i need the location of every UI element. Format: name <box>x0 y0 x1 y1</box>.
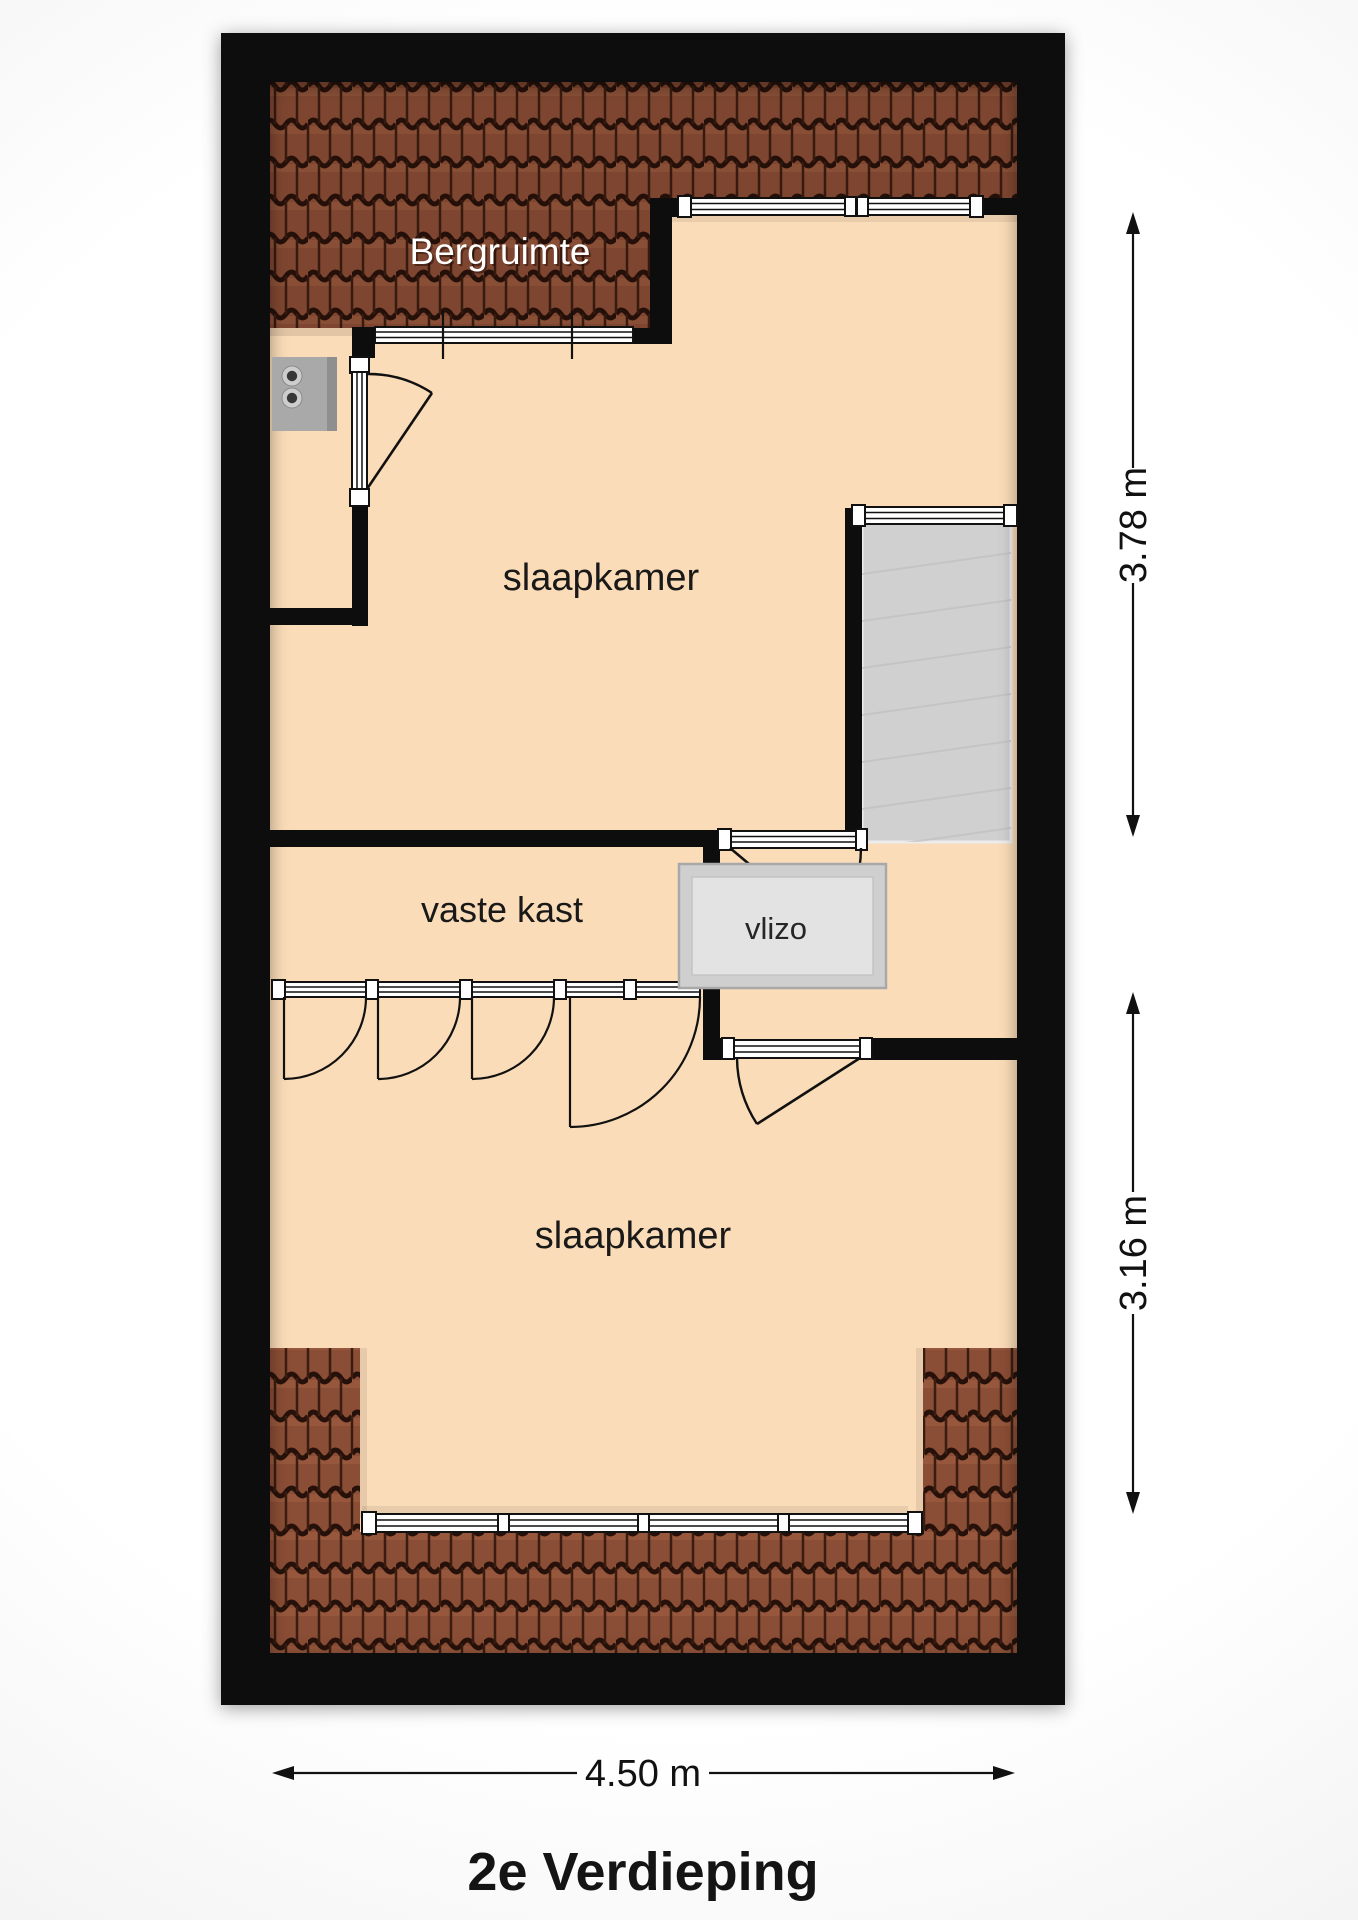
wall-step-vertical <box>650 198 672 344</box>
stairs <box>855 523 1018 850</box>
window-top <box>678 196 983 217</box>
wall-landing-bottom-stub <box>703 1038 722 1060</box>
wall-topwindow-right <box>982 198 1017 215</box>
vaste-kast-label: vaste kast <box>421 889 583 930</box>
window-stairs <box>852 505 1017 526</box>
wall-landing-bottom <box>872 1038 1017 1060</box>
vlizo-hatch: vlizo <box>679 864 886 988</box>
dimension-label-bottom: 3.16 m <box>1113 1195 1155 1311</box>
boiler-icon <box>272 357 337 431</box>
bedroom-top-label: slaapkamer <box>503 557 700 599</box>
roof-shadow <box>916 1348 923 1518</box>
roof-shadow <box>362 1506 908 1514</box>
dimension-label-top: 3.78 m <box>1113 467 1155 583</box>
dimension-vertical-top: 3.78 m <box>1113 212 1155 837</box>
wall-stairs-left <box>845 508 862 832</box>
bergruimte-label: Bergruimte <box>410 231 591 272</box>
wall-middle <box>270 830 718 847</box>
wall-bergwindow-right <box>633 328 672 344</box>
floorplan-page: vlizo Bergruimte Bergruimte slaapkamer v… <box>0 0 1358 1920</box>
dimension-label-width: 4.50 m <box>585 1753 701 1795</box>
wall-niche-horizontal <box>270 608 368 625</box>
vlizo-label: vlizo <box>745 911 807 946</box>
bedroom-bottom-label: slaapkamer <box>535 1215 732 1257</box>
floorplan-canvas: vlizo Bergruimte Bergruimte slaapkamer v… <box>0 0 1358 1920</box>
window-bottom <box>362 1512 922 1534</box>
dimension-horizontal: 4.50 m <box>272 1753 1015 1795</box>
roof-shadow <box>360 1348 367 1518</box>
dimension-vertical-bottom: 3.16 m <box>1113 992 1155 1514</box>
wall-bergwindow-left-post <box>352 327 375 358</box>
page-title: 2e Verdieping <box>467 1842 818 1902</box>
